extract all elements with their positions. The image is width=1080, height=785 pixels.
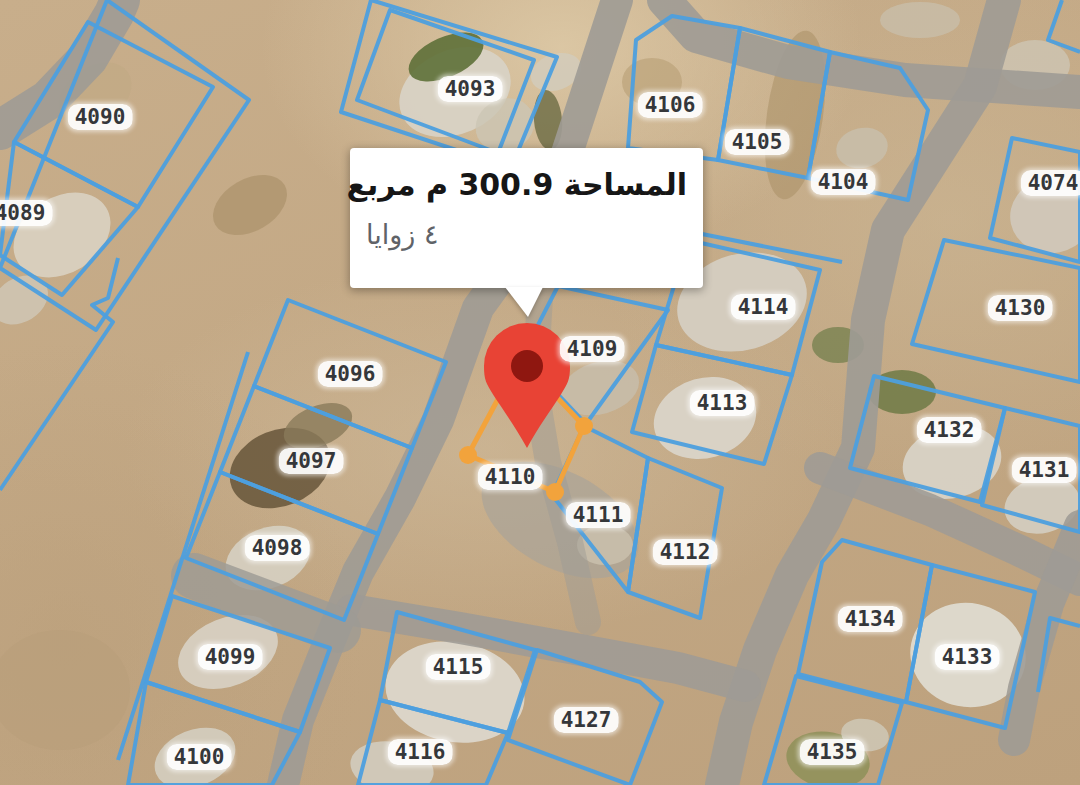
parcel-corners-text: ٤ زوايا — [366, 218, 687, 252]
info-window-tail — [505, 287, 543, 317]
parcel-label-4089[interactable]: 4089 — [0, 200, 52, 226]
parcel-label-4131[interactable]: 4131 — [1012, 457, 1077, 483]
terrain-patch — [644, 365, 766, 471]
parcel-label-4130[interactable]: 4130 — [988, 295, 1053, 321]
selection-vertex-handle[interactable] — [575, 417, 593, 435]
parcel-label-4113[interactable]: 4113 — [690, 390, 755, 416]
parcel-label-4109[interactable]: 4109 — [560, 336, 625, 362]
parcel-label-4110[interactable]: 4110 — [478, 464, 543, 490]
selection-vertex-handle[interactable] — [546, 483, 564, 501]
parcel-label-4135[interactable]: 4135 — [800, 739, 865, 765]
parcel-label-4074[interactable]: 4074 — [1021, 170, 1080, 196]
info-window: المساحة 300.9 م مربع ٤ زوايا — [350, 148, 703, 288]
terrain-patch — [880, 2, 960, 38]
parcel-label-4097[interactable]: 4097 — [279, 448, 344, 474]
pin-body — [484, 323, 570, 448]
parcel-label-4127[interactable]: 4127 — [554, 707, 619, 733]
parcel-label-4100[interactable]: 4100 — [167, 744, 232, 770]
parcel-label-4114[interactable]: 4114 — [731, 294, 796, 320]
parcel-label-4116[interactable]: 4116 — [388, 739, 453, 765]
parcel-label-4105[interactable]: 4105 — [725, 129, 790, 155]
map-canvas[interactable]: 4090408940934106410541044074411441134109… — [0, 0, 1080, 785]
terrain-patch — [832, 123, 891, 173]
parcel-label-4104[interactable]: 4104 — [811, 169, 876, 195]
parcel-label-4098[interactable]: 4098 — [245, 535, 310, 561]
parcel-label-4090[interactable]: 4090 — [68, 104, 133, 130]
parcel-label-4134[interactable]: 4134 — [838, 606, 903, 632]
parcel-area-text: المساحة 300.9 م مربع — [366, 164, 687, 206]
marker-layer — [484, 323, 570, 448]
parcel-label-4099[interactable]: 4099 — [198, 644, 263, 670]
terrain-patch — [202, 162, 297, 247]
pin-core-dot — [511, 350, 543, 382]
parcel-label-4096[interactable]: 4096 — [318, 361, 383, 387]
parcel-label-4132[interactable]: 4132 — [917, 417, 982, 443]
parcel-label-4133[interactable]: 4133 — [935, 644, 1000, 670]
parcel-label-4112[interactable]: 4112 — [653, 539, 718, 565]
parcel-label-4093[interactable]: 4093 — [438, 76, 503, 102]
selection-vertex-handle[interactable] — [459, 446, 477, 464]
parcel-label-4106[interactable]: 4106 — [638, 92, 703, 118]
terrain-patch — [0, 630, 130, 750]
parcel-label-4115[interactable]: 4115 — [426, 654, 491, 680]
satellite-map-svg — [0, 0, 1080, 785]
map-pin[interactable] — [484, 323, 570, 448]
parcel-4112[interactable] — [628, 458, 722, 618]
parcel-label-4111[interactable]: 4111 — [566, 502, 631, 528]
